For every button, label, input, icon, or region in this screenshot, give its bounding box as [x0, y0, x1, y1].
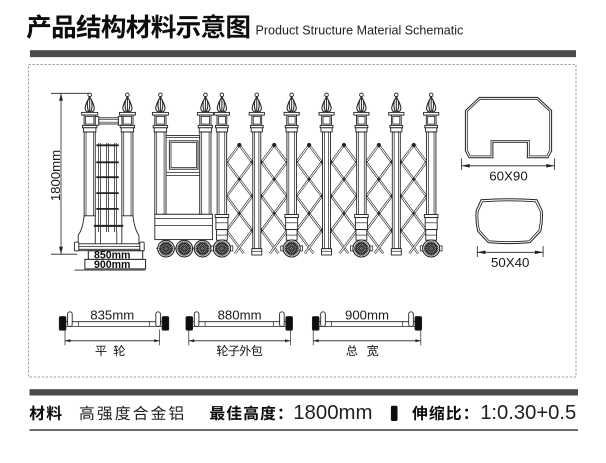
svg-text:1800mm: 1800mm: [48, 150, 63, 201]
svg-text:Product Structure Material Sch: Product Structure Material Schematic: [256, 24, 464, 38]
svg-text:1800mm: 1800mm: [293, 402, 372, 424]
svg-text:60X90: 60X90: [489, 169, 527, 184]
svg-text:900mm: 900mm: [94, 259, 131, 271]
svg-text:900mm: 900mm: [345, 308, 389, 323]
svg-text:835mm: 835mm: [90, 308, 134, 323]
svg-text:50X40: 50X40: [491, 255, 529, 270]
svg-text:1:0.30+0.5: 1:0.30+0.5: [480, 402, 576, 424]
svg-text:880mm: 880mm: [218, 308, 262, 323]
